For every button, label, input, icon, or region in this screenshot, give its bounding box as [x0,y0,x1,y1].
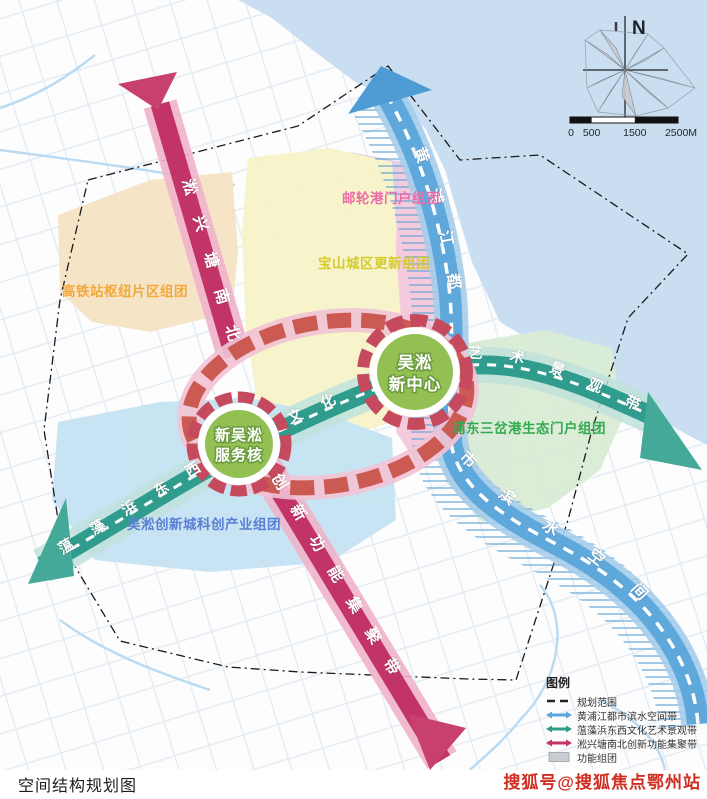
legend-row-canal: 蕰藻浜东西文化艺术景观带 [546,722,706,736]
district-label-innovation-city: 吴淞创新城科创产业组团 [127,516,281,532]
scale-tick-0: 0 [568,127,574,139]
scale-tick-1500: 1500 [623,127,647,139]
district-label-cruise-port-text: 邮轮港门户组团 [342,190,440,206]
planning-map-page: 新吴淞 服务核 吴淞 新中心 淞兴塘南北 创新功能集聚带 黄浦江都 市滨水空间带… [0,0,707,799]
service-core-label-line2: 服务核 [215,446,263,464]
scale-bar: 0 500 1500 2500M [568,117,697,139]
legend-label-area: 功能组团 [577,750,617,765]
district-label-sanchagang-text: 浦东三岔港生态门户组团 [452,420,606,436]
map-caption: 空间结构规划图 [18,772,137,796]
canal-band-icon [546,724,572,734]
legend-row-axis: 淞兴塘南北创新功能集聚带 [546,736,706,750]
legend-label-canal: 蕰藻浜东西文化艺术景观带 [577,722,697,737]
district-label-innovation-city-text: 吴淞创新城科创产业组团 [127,516,281,532]
legend-row-river: 黄浦江都市滨水空间带 [546,708,706,722]
boundary-dash-icon [546,696,572,706]
legend-title: 图例 [546,674,706,691]
district-label-cruise-port: 邮轮港门户组团 [342,190,440,206]
district-label-sanchagang: 浦东三岔港生态门户组团 [452,420,606,436]
new-center-label-line1: 吴淞 [398,352,433,372]
district-label-baoshan: 宝山城区更新组团 [318,255,430,271]
legend-row-area: 功能组团 [546,750,706,764]
legend-row-boundary: 规划范围 [546,694,706,708]
compass-north-label: N [632,18,646,39]
legend: 图例 规划范围 黄浦江都市滨水空间带 蕰藻浜东西文化艺术景观带 淞兴塘南北创新功… [546,674,706,764]
district-label-rail-hub: 高铁站枢纽片区组团 [62,283,188,299]
scale-tick-2500: 2500M [665,127,697,139]
legend-label-river: 黄浦江都市滨水空间带 [577,708,677,723]
function-area-icon [546,752,572,762]
district-label-rail-hub-text: 高铁站枢纽片区组团 [62,283,188,299]
new-center-label-line2: 新中心 [389,374,442,394]
legend-label-boundary: 规划范围 [577,694,617,709]
watermark: 搜狐号@搜狐焦点鄂州站 [503,768,701,793]
axis-band-icon [546,738,572,748]
legend-label-axis: 淞兴塘南北创新功能集聚带 [577,736,697,751]
scale-tick-500: 500 [583,127,601,139]
service-core-node: 新吴淞 服务核 [192,397,286,491]
service-core-label-line1: 新吴淞 [215,426,263,444]
river-band-icon [546,710,572,720]
district-label-baoshan-text: 宝山城区更新组团 [318,255,430,271]
planning-map: 新吴淞 服务核 吴淞 新中心 淞兴塘南北 创新功能集聚带 黄浦江都 市滨水空间带… [0,0,707,770]
